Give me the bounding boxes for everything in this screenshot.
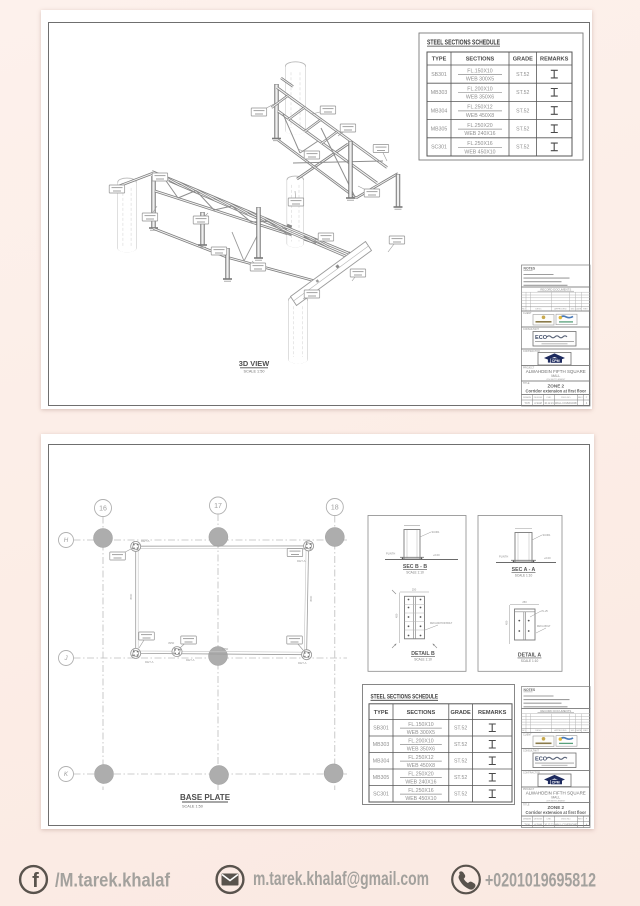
- svg-text:SC301: SC301: [373, 792, 389, 798]
- svg-text:P: P: [586, 819, 588, 821]
- svg-text:16: 16: [99, 506, 107, 513]
- svg-text:MALL: MALL: [551, 796, 560, 800]
- svg-text:PLINTH: PLINTH: [386, 552, 395, 556]
- svg-text:ST.52: ST.52: [516, 72, 529, 78]
- svg-text:18: 18: [331, 505, 339, 512]
- svg-text:CLIENT: CLIENT: [523, 734, 532, 737]
- svg-text:DATE: DATE: [576, 308, 582, 311]
- svg-text:WEB 450X10: WEB 450X10: [405, 796, 436, 802]
- svg-text:WALL-COVER-DWF: WALL-COVER-DWF: [555, 402, 577, 405]
- svg-text:WEB 450X10: WEB 450X10: [464, 149, 495, 155]
- svg-text:A.SAM: A.SAM: [534, 402, 541, 405]
- svg-text:FL.150X10: FL.150X10: [467, 68, 492, 74]
- svg-text:CHK.: CHK.: [546, 819, 552, 821]
- svg-text:SEC B - B: SEC B - B: [403, 564, 427, 570]
- svg-text:ST.52: ST.52: [454, 775, 467, 781]
- svg-text:DET.A: DET.A: [186, 658, 195, 662]
- svg-text:ECO: ECO: [535, 756, 548, 762]
- svg-text:DET.A: DET.A: [298, 661, 307, 665]
- svg-text:APPROVED: APPROVED: [554, 729, 567, 732]
- svg-text:WEB 300X5: WEB 300X5: [407, 730, 435, 736]
- svg-text:Corridor extension at first fl: Corridor extension at first floor: [526, 389, 587, 394]
- svg-text:17: 17: [214, 503, 222, 510]
- svg-text:PLINTH: PLINTH: [499, 555, 508, 559]
- svg-text:3950: 3950: [168, 641, 175, 645]
- svg-text:DRAWN: DRAWN: [523, 396, 532, 399]
- svg-text:DESC: DESC: [535, 730, 541, 732]
- svg-text:250: 250: [412, 588, 417, 592]
- svg-text:SB301: SB301: [431, 72, 447, 78]
- svg-text:ST.52: ST.52: [516, 108, 529, 114]
- svg-text:APPROVED: APPROVED: [554, 308, 567, 311]
- svg-text:GRADE: GRADE: [513, 57, 533, 63]
- svg-text:GRADE: GRADE: [450, 710, 470, 716]
- svg-text:SECTIONS: SECTIONS: [407, 710, 436, 716]
- svg-text:STEEL SECTIONS SCHEDULE: STEEL SECTIONS SCHEDULE: [427, 37, 500, 46]
- svg-text:DET.A: DET.A: [145, 660, 154, 664]
- svg-text:ST.52: ST.52: [454, 742, 467, 748]
- svg-text:ECO: ECO: [535, 335, 548, 341]
- svg-text:CONSULTANT: CONSULTANT: [523, 750, 539, 753]
- svg-text:DRAWN: DRAWN: [523, 818, 532, 821]
- svg-text:SB301: SB301: [373, 726, 389, 732]
- svg-text:MB305: MB305: [373, 775, 390, 781]
- svg-text:RECORD DOCUMENTS: RECORD DOCUMENTS: [540, 709, 571, 713]
- svg-text:NOTES: NOTES: [524, 267, 536, 271]
- svg-text:WEB 450X8: WEB 450X8: [466, 113, 494, 119]
- svg-text:BASE PLATE: BASE PLATE: [180, 793, 231, 802]
- svg-text:WEB 300X5: WEB 300X5: [466, 77, 494, 83]
- svg-text:DWG NO.: DWG NO.: [561, 397, 571, 399]
- svg-text:RECORD DOCUMENTS: RECORD DOCUMENTS: [540, 287, 571, 291]
- svg-text:P: P: [586, 397, 588, 399]
- svg-text:STEEL SECTIONS SCHEDULE: STEEL SECTIONS SCHEDULE: [371, 694, 439, 701]
- svg-text:3D VIEW: 3D VIEW: [239, 359, 269, 368]
- svg-text:DWG NO.: DWG NO.: [561, 819, 571, 821]
- svg-text:SC301: SC301: [432, 530, 440, 534]
- svg-text:FL.250X20: FL.250X20: [467, 123, 492, 129]
- svg-text:H: H: [64, 537, 69, 544]
- svg-text:NOTES: NOTES: [524, 688, 536, 692]
- svg-text:SCALE 1:10: SCALE 1:10: [521, 659, 539, 663]
- svg-text:WEB 350X6: WEB 350X6: [407, 747, 435, 753]
- svg-text:MB304: MB304: [373, 759, 390, 765]
- svg-text:CPM: CPM: [552, 781, 560, 785]
- svg-text:/M.tarek.khalaf: /M.tarek.khalaf: [55, 871, 171, 892]
- svg-text:MB305: MB305: [431, 127, 448, 133]
- svg-text:DET.A: DET.A: [297, 559, 306, 563]
- svg-text:WALL-COVER-DWF: WALL-COVER-DWF: [555, 824, 577, 827]
- svg-text:ST.52: ST.52: [454, 726, 467, 732]
- svg-text:SCALE 1:50: SCALE 1:50: [244, 370, 265, 374]
- svg-text:CONSULTANT: CONSULTANT: [523, 328, 539, 331]
- svg-text:ST.52: ST.52: [516, 145, 529, 151]
- svg-text:REV.: REV.: [578, 819, 583, 821]
- svg-text:FL.150X10: FL.150X10: [408, 722, 433, 728]
- svg-text:SCALE 1:10: SCALE 1:10: [515, 574, 533, 578]
- svg-text:..: ..: [527, 730, 529, 732]
- svg-text:SCALE 1:10: SCALE 1:10: [406, 571, 424, 575]
- svg-text:T.KH: T.KH: [524, 402, 529, 405]
- svg-text:ST.52: ST.52: [516, 90, 529, 96]
- svg-text:FL.250X12: FL.250X12: [408, 755, 433, 761]
- svg-text:m.tarek.khalaf@gmail.com: m.tarek.khalaf@gmail.com: [253, 869, 429, 890]
- svg-text:ST.52: ST.52: [454, 792, 467, 798]
- svg-text:DESIGN: DESIGN: [534, 397, 543, 399]
- svg-text:+0.00: +0.00: [433, 553, 440, 557]
- svg-text:FL.250X16: FL.250X16: [467, 141, 492, 147]
- svg-text:FL.200X10: FL.200X10: [408, 739, 433, 745]
- svg-text:TITLE: TITLE: [523, 804, 530, 807]
- svg-text:ST.52: ST.52: [516, 127, 529, 133]
- svg-text:CHK.: CHK.: [546, 397, 552, 399]
- svg-text:SC301: SC301: [431, 145, 447, 151]
- svg-text:10.12.21: 10.12.21: [544, 402, 554, 405]
- svg-text:NO: NO: [522, 730, 526, 732]
- svg-text:450: 450: [505, 620, 509, 625]
- svg-text:WEB 240X16: WEB 240X16: [405, 780, 436, 786]
- svg-text:WEB 350X6: WEB 350X6: [466, 95, 494, 101]
- svg-text:CLIENT: CLIENT: [523, 312, 532, 315]
- svg-text:REV: REV: [583, 309, 588, 311]
- svg-text:M20 A.BOLT: M20 A.BOLT: [537, 625, 551, 628]
- svg-text:250: 250: [522, 600, 527, 604]
- svg-text:FL.200X10: FL.200X10: [467, 87, 492, 93]
- svg-text:FL.250X16: FL.250X16: [408, 788, 433, 794]
- svg-text:CONTRACTOR: CONTRACTOR: [523, 772, 540, 775]
- svg-text:MB304: MB304: [431, 108, 448, 114]
- svg-text:ST.52: ST.52: [454, 759, 467, 765]
- svg-text:NO: NO: [522, 309, 526, 311]
- svg-text:DESC: DESC: [535, 309, 541, 311]
- svg-text:f: f: [32, 870, 39, 892]
- svg-text:4: 4: [586, 402, 588, 405]
- svg-text:PL.25: PL.25: [542, 610, 549, 613]
- svg-text:Corridor extension at first fl: Corridor extension at first floor: [526, 810, 587, 815]
- svg-text:MALL: MALL: [551, 374, 560, 378]
- svg-text:SECTIONS: SECTIONS: [466, 57, 495, 63]
- svg-text:DETAIL B: DETAIL B: [411, 651, 435, 657]
- svg-text:REV: REV: [583, 730, 588, 732]
- svg-text:10.12.21: 10.12.21: [544, 824, 554, 827]
- svg-text:A.SAM: A.SAM: [534, 824, 541, 827]
- svg-text:TYPE: TYPE: [432, 57, 447, 63]
- svg-text:REMARKS: REMARKS: [540, 57, 569, 63]
- svg-text:FL.250X20: FL.250X20: [408, 772, 433, 778]
- svg-text:450: 450: [395, 613, 399, 618]
- svg-text:DET.A: DET.A: [141, 539, 150, 543]
- svg-text:SEC A - A: SEC A - A: [512, 567, 536, 573]
- svg-text:M20 ANCHOR BOLT: M20 ANCHOR BOLT: [430, 622, 453, 625]
- svg-text:..: ..: [527, 309, 529, 311]
- svg-text:REMARKS: REMARKS: [478, 710, 507, 716]
- svg-text:FL.250X12: FL.250X12: [467, 105, 492, 111]
- svg-text:SCALE 1:10: SCALE 1:10: [414, 658, 432, 662]
- svg-text:DETAIL A: DETAIL A: [518, 653, 541, 659]
- svg-text:T.KH: T.KH: [524, 824, 529, 827]
- svg-text:DESIGN: DESIGN: [534, 819, 543, 821]
- svg-text:SCALE 1:50: SCALE 1:50: [182, 805, 203, 809]
- svg-text:WEB 240X16: WEB 240X16: [464, 131, 495, 137]
- svg-text:5750: 5750: [222, 647, 229, 651]
- svg-text:WEB 450X8: WEB 450X8: [407, 763, 435, 769]
- svg-text:SC301: SC301: [543, 533, 551, 537]
- svg-text:SIG: SIG: [571, 730, 575, 732]
- svg-text:+0.00: +0.00: [544, 556, 551, 560]
- svg-text:4500: 4500: [309, 595, 313, 602]
- svg-text:TITLE: TITLE: [523, 382, 530, 385]
- svg-text:CPM: CPM: [552, 359, 560, 363]
- svg-text:CONTRACTOR: CONTRACTOR: [523, 350, 540, 353]
- svg-text:4500: 4500: [129, 593, 133, 600]
- svg-text:+0201019695812: +0201019695812: [485, 871, 596, 892]
- svg-text:MB303: MB303: [431, 90, 448, 96]
- svg-text:SIG: SIG: [571, 309, 575, 311]
- svg-text:MB303: MB303: [373, 742, 390, 748]
- svg-text:REV.: REV.: [578, 397, 583, 399]
- svg-text:DATE: DATE: [576, 729, 582, 732]
- svg-text:TYPE: TYPE: [374, 710, 389, 716]
